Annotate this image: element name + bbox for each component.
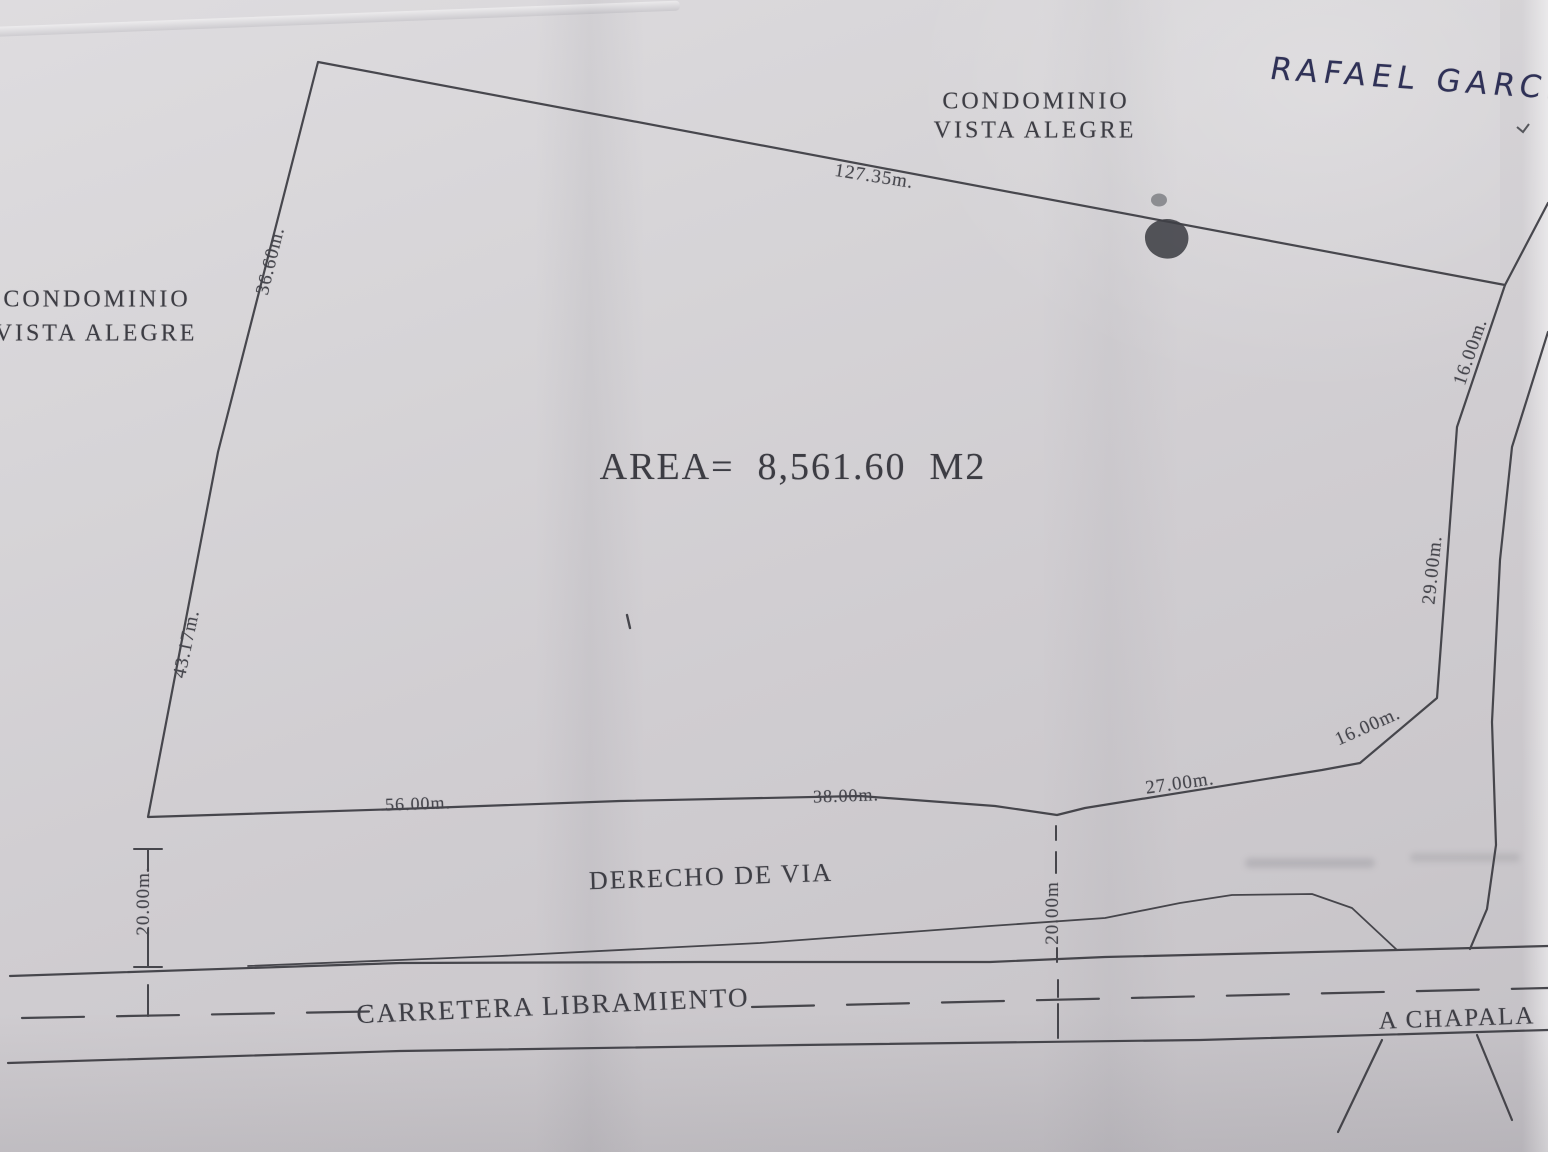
dimension-bottom-left: 56.00m.	[385, 792, 452, 815]
road-junction-fork-right	[1477, 1035, 1512, 1120]
east-side-road-line	[1470, 332, 1548, 949]
survey-linework	[0, 0, 1548, 1152]
pen-check-mark	[1517, 124, 1529, 132]
road-centerline-dashed-right	[752, 988, 1548, 1007]
neighbor-label-top-line1: CONDOMINIO	[942, 89, 1129, 116]
road-junction-fork-left	[1338, 1040, 1382, 1132]
dimension-bottom-middle: 38.00m.	[813, 784, 880, 807]
dimension-setback-center: 20.00m	[1042, 881, 1064, 945]
road-direction-label: A CHAPALA	[1378, 1002, 1536, 1035]
ink-blot-large	[1145, 219, 1189, 259]
road-north-edge	[10, 946, 1548, 976]
parcel-boundary	[148, 62, 1505, 817]
area-label: AREA= 8,561.60 M2	[600, 445, 987, 489]
neighbor-label-left-line2: VISTA ALEGRE	[0, 321, 197, 348]
road-south-edge	[8, 1030, 1548, 1063]
road-centerline-dashed-left	[22, 1011, 395, 1018]
stray-pen-mark	[627, 615, 630, 628]
neighbor-label-top-line2: VISTA ALEGRE	[934, 118, 1137, 145]
neighbor-boundary-extension	[1505, 203, 1548, 285]
ink-blot-small	[1151, 194, 1167, 207]
neighbor-label-left-line1: CONDOMINIO	[3, 287, 190, 314]
dimension-setback-left: 20.00m.	[133, 866, 155, 935]
scanned-survey-plan: RAFAEL GARCIA CONDOMINIO VISTA ALEGRE CO…	[0, 0, 1548, 1152]
